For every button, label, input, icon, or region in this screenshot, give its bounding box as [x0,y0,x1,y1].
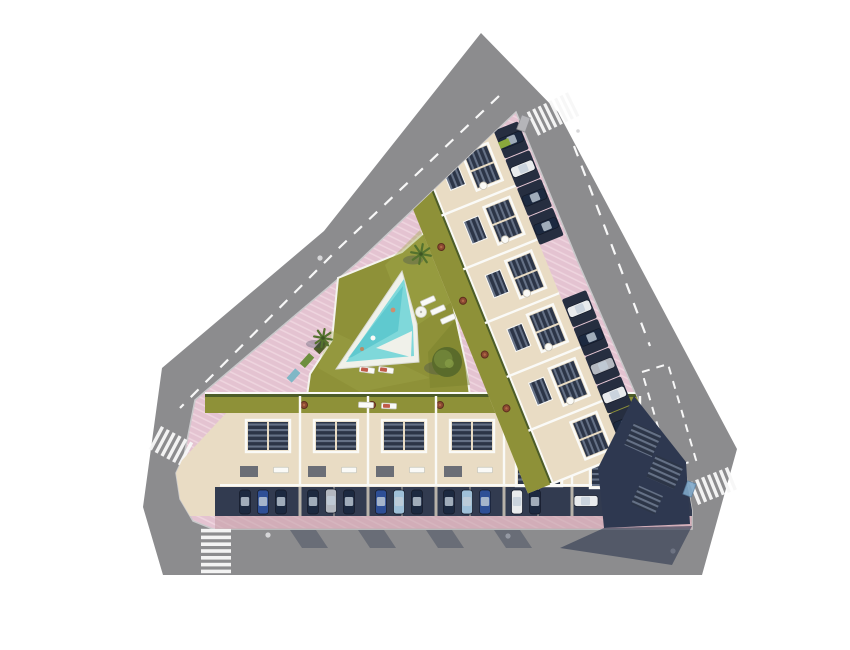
roof-lounger [478,467,493,473]
parked-car [326,489,337,513]
carport-pillar [571,487,574,516]
unit-divider-wall [367,396,369,486]
carport-pillar [367,487,370,516]
unit-divider-wall [299,396,301,486]
parked-car [308,490,319,514]
carport-pillar [503,487,506,516]
parasol-top [420,311,422,313]
garden-dining-set [301,402,308,409]
parked-car [530,490,541,514]
parked-car [394,490,405,514]
parked-car [574,496,598,507]
stair-shadow [376,466,394,477]
parked-car [462,490,473,514]
parked-car [512,490,523,514]
manhole-cover [576,129,580,133]
carport-pillar [299,487,302,516]
roof-lounger [342,467,357,473]
parked-car [412,490,423,514]
pool-table [371,336,376,341]
manhole-cover [317,255,322,260]
stair-shadow [308,466,326,477]
parked-car [344,490,355,514]
parked-car [258,490,269,514]
parked-car [376,490,387,514]
parked-car [444,490,455,514]
swimmer [391,308,396,313]
screenshot-canvas [0,0,850,650]
garden-dining-set [437,402,444,409]
stair-shadow [444,466,462,477]
sun-lounger [358,402,373,408]
unit-divider-wall [435,396,437,486]
person-on-lawn [360,347,364,351]
parked-car [276,490,287,514]
parked-car [240,490,251,514]
carport-pillar [435,487,438,516]
roof-lounger [410,467,425,473]
manhole-cover [265,532,270,537]
parked-car [480,490,491,514]
site-plan-render [0,0,850,650]
page: { "scene": { "description": "Aerial 3D r… [0,0,850,650]
roof-lounger [274,467,289,473]
sun-lounger [381,403,396,409]
stair-shadow [240,466,258,477]
